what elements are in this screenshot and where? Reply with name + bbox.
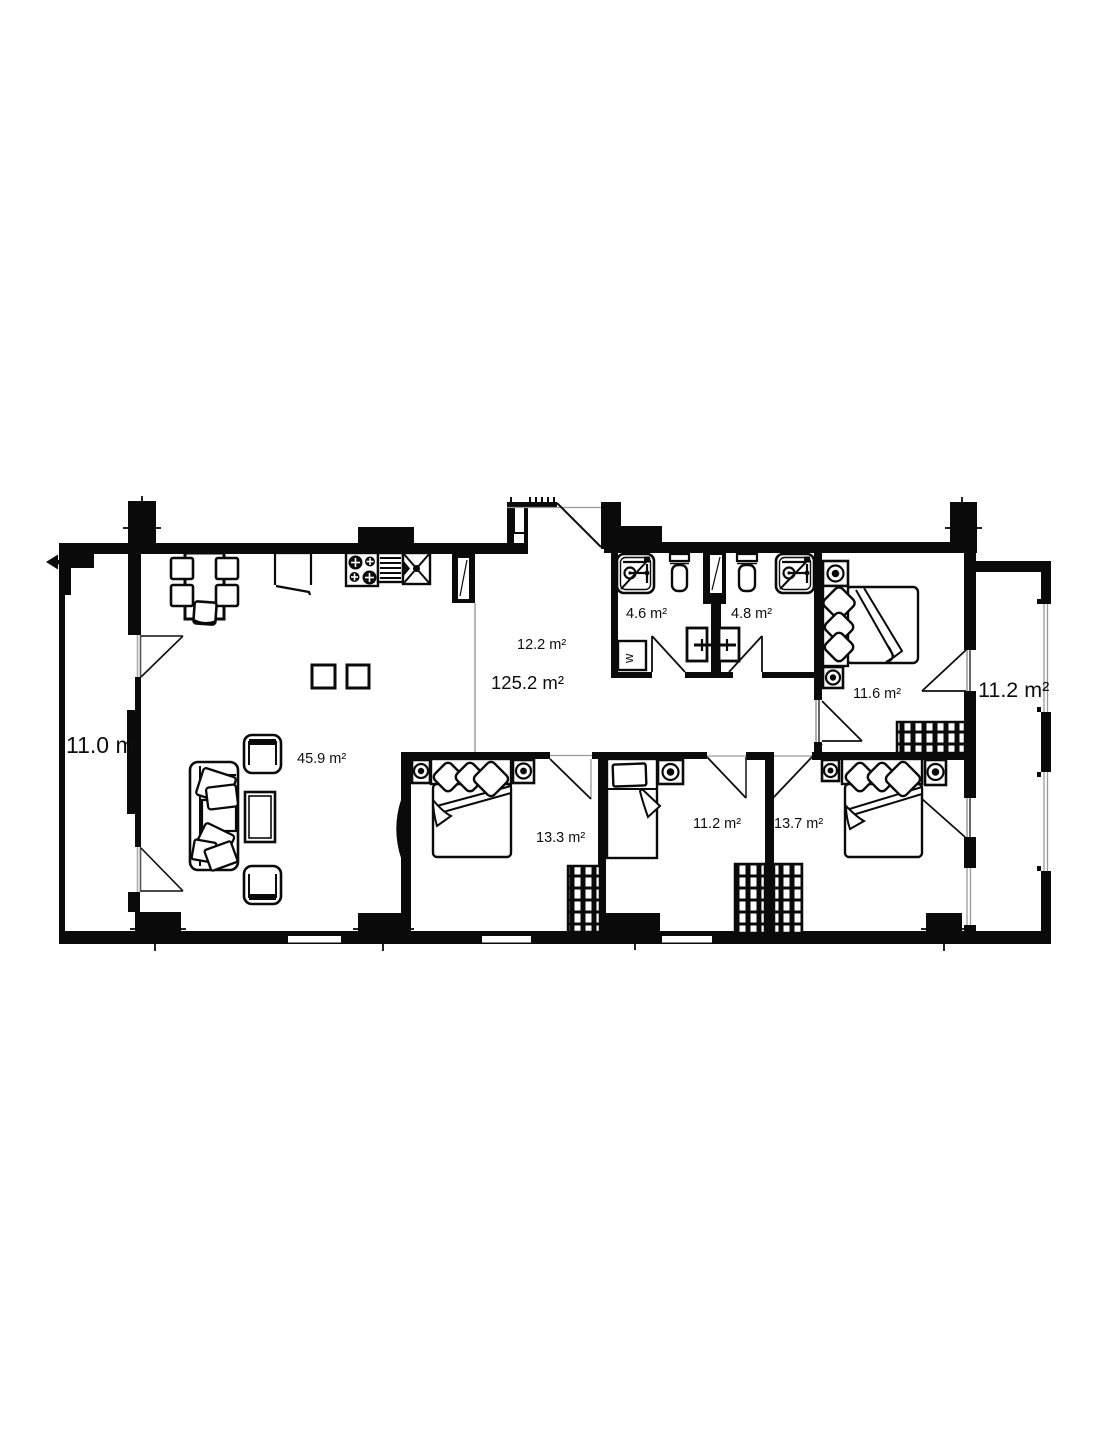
svg-text:45.9 m²: 45.9 m² [297,751,346,767]
svg-text:11.0 m: 11.0 m [66,732,135,758]
svg-text:11.2 m²: 11.2 m² [978,678,1049,702]
svg-text:13.3 m²: 13.3 m² [536,830,585,846]
svg-text:125.2 m²: 125.2 m² [491,672,564,693]
svg-text:4.8 m²: 4.8 m² [731,606,772,622]
svg-text:4.6 m²: 4.6 m² [626,606,667,622]
svg-text:13.7 m²: 13.7 m² [774,816,823,832]
svg-text:11.2 m²: 11.2 m² [693,816,741,832]
svg-text:w: w [621,653,636,664]
svg-text:11.6 m²: 11.6 m² [853,686,901,702]
svg-text:12.2 m²: 12.2 m² [517,637,566,653]
